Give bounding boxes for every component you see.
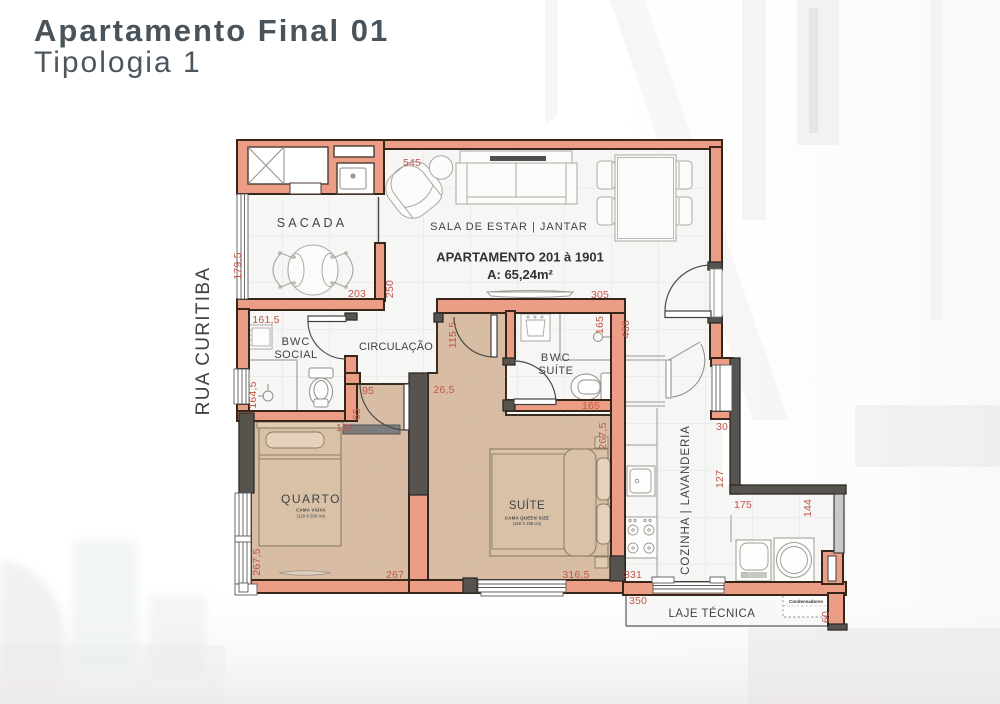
svg-text:QUARTO: QUARTO bbox=[281, 492, 341, 506]
svg-text:SUÍTE: SUÍTE bbox=[539, 364, 574, 377]
svg-text:(158 X 198 cm): (158 X 198 cm) bbox=[513, 521, 542, 526]
svg-text:115,5: 115,5 bbox=[447, 322, 459, 349]
svg-text:(120 X 200 cm): (120 X 200 cm) bbox=[297, 514, 326, 519]
svg-text:BWC: BWC bbox=[541, 352, 571, 364]
svg-text:60: 60 bbox=[820, 611, 832, 623]
svg-text:Condensadores: Condensadores bbox=[789, 599, 824, 604]
svg-text:267,5: 267,5 bbox=[251, 548, 263, 575]
svg-text:331: 331 bbox=[624, 569, 642, 581]
svg-text:144: 144 bbox=[802, 499, 814, 517]
svg-text:CAMA QUEEN SIZE: CAMA QUEEN SIZE bbox=[505, 516, 549, 521]
svg-text:26,5: 26,5 bbox=[433, 384, 454, 396]
svg-text:267: 267 bbox=[386, 569, 404, 581]
svg-text:SUÍTE: SUÍTE bbox=[509, 499, 545, 512]
svg-text:SACADA: SACADA bbox=[277, 216, 348, 230]
svg-text:CAMA VIÚVA: CAMA VIÚVA bbox=[296, 508, 326, 513]
svg-text:161,5: 161,5 bbox=[252, 314, 279, 326]
svg-text:164,5: 164,5 bbox=[247, 381, 259, 408]
svg-text:165: 165 bbox=[582, 400, 600, 412]
svg-text:APARTAMENTO 201 à 1901: APARTAMENTO 201 à 1901 bbox=[436, 250, 604, 265]
svg-text:350: 350 bbox=[629, 595, 647, 607]
svg-text:Tipologia 1: Tipologia 1 bbox=[34, 46, 202, 79]
svg-text:466: 466 bbox=[620, 320, 632, 338]
svg-text:165: 165 bbox=[594, 316, 606, 334]
svg-text:BWC: BWC bbox=[282, 336, 311, 348]
svg-text:65: 65 bbox=[351, 408, 363, 420]
svg-text:CIRCULAÇÃO: CIRCULAÇÃO bbox=[359, 340, 433, 353]
svg-text:SALA DE ESTAR | JANTAR: SALA DE ESTAR | JANTAR bbox=[430, 221, 588, 233]
svg-text:316,5: 316,5 bbox=[562, 569, 589, 581]
svg-text:30: 30 bbox=[716, 421, 728, 433]
svg-text:179,5: 179,5 bbox=[232, 252, 244, 279]
svg-text:Apartamento Final 01: Apartamento Final 01 bbox=[34, 13, 389, 48]
svg-text:305: 305 bbox=[591, 289, 609, 301]
svg-text:267,5: 267,5 bbox=[597, 422, 609, 449]
svg-text:RUA CURITIBA: RUA CURITIBA bbox=[193, 267, 214, 416]
svg-text:545: 545 bbox=[403, 157, 421, 169]
svg-text:A: 65,24m²: A: 65,24m² bbox=[487, 267, 553, 282]
svg-text:SOCIAL: SOCIAL bbox=[274, 349, 317, 361]
svg-text:175: 175 bbox=[734, 499, 752, 511]
svg-text:250: 250 bbox=[384, 280, 396, 298]
svg-text:161: 161 bbox=[336, 422, 354, 434]
svg-text:COZINHA | LAVANDERIA: COZINHA | LAVANDERIA bbox=[680, 425, 692, 575]
svg-text:127: 127 bbox=[714, 470, 726, 488]
svg-text:LAJE TÉCNICA: LAJE TÉCNICA bbox=[669, 607, 756, 620]
svg-text:95: 95 bbox=[362, 385, 374, 397]
svg-text:203: 203 bbox=[348, 288, 366, 300]
